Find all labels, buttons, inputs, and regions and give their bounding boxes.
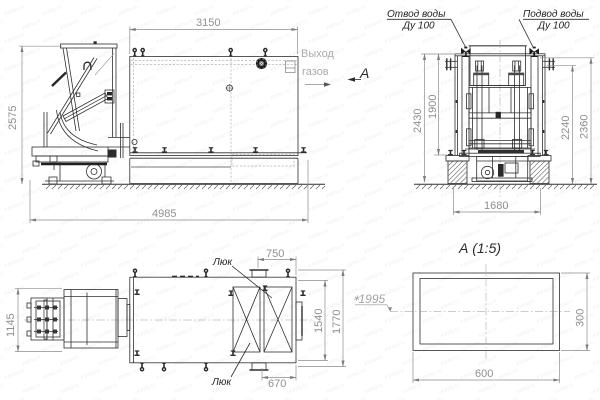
svg-text:1900: 1900 [427, 95, 439, 119]
svg-text:2360: 2360 [579, 115, 591, 139]
svg-text:300: 300 [575, 309, 587, 327]
svg-text:4985: 4985 [152, 208, 176, 220]
svg-text:газов: газов [302, 66, 329, 78]
svg-text:Отвод воды: Отвод воды [387, 9, 446, 20]
svg-text:600: 600 [475, 368, 493, 380]
svg-text:750: 750 [266, 248, 284, 260]
svg-text:Люк: Люк [212, 257, 233, 268]
svg-text:2430: 2430 [412, 109, 424, 133]
svg-text:1540: 1540 [313, 309, 325, 333]
svg-text:3150: 3150 [196, 17, 220, 29]
svg-text:1145: 1145 [5, 313, 17, 337]
svg-text:А: А [359, 65, 369, 81]
svg-text:Ду 100: Ду 100 [402, 21, 435, 32]
svg-text:2575: 2575 [7, 106, 19, 130]
svg-text:1770: 1770 [331, 310, 343, 334]
svg-text:1680: 1680 [484, 200, 508, 212]
svg-text:Люк: Люк [211, 377, 232, 388]
svg-text:Ду 100: Ду 100 [537, 21, 570, 32]
svg-text:А (1:5): А (1:5) [458, 240, 501, 256]
svg-text:Выход: Выход [301, 48, 334, 60]
svg-text:Подвод воды: Подвод воды [523, 9, 584, 20]
svg-text:2240: 2240 [560, 116, 572, 140]
svg-text:670: 670 [268, 378, 286, 390]
svg-text:1995: 1995 [359, 292, 386, 306]
